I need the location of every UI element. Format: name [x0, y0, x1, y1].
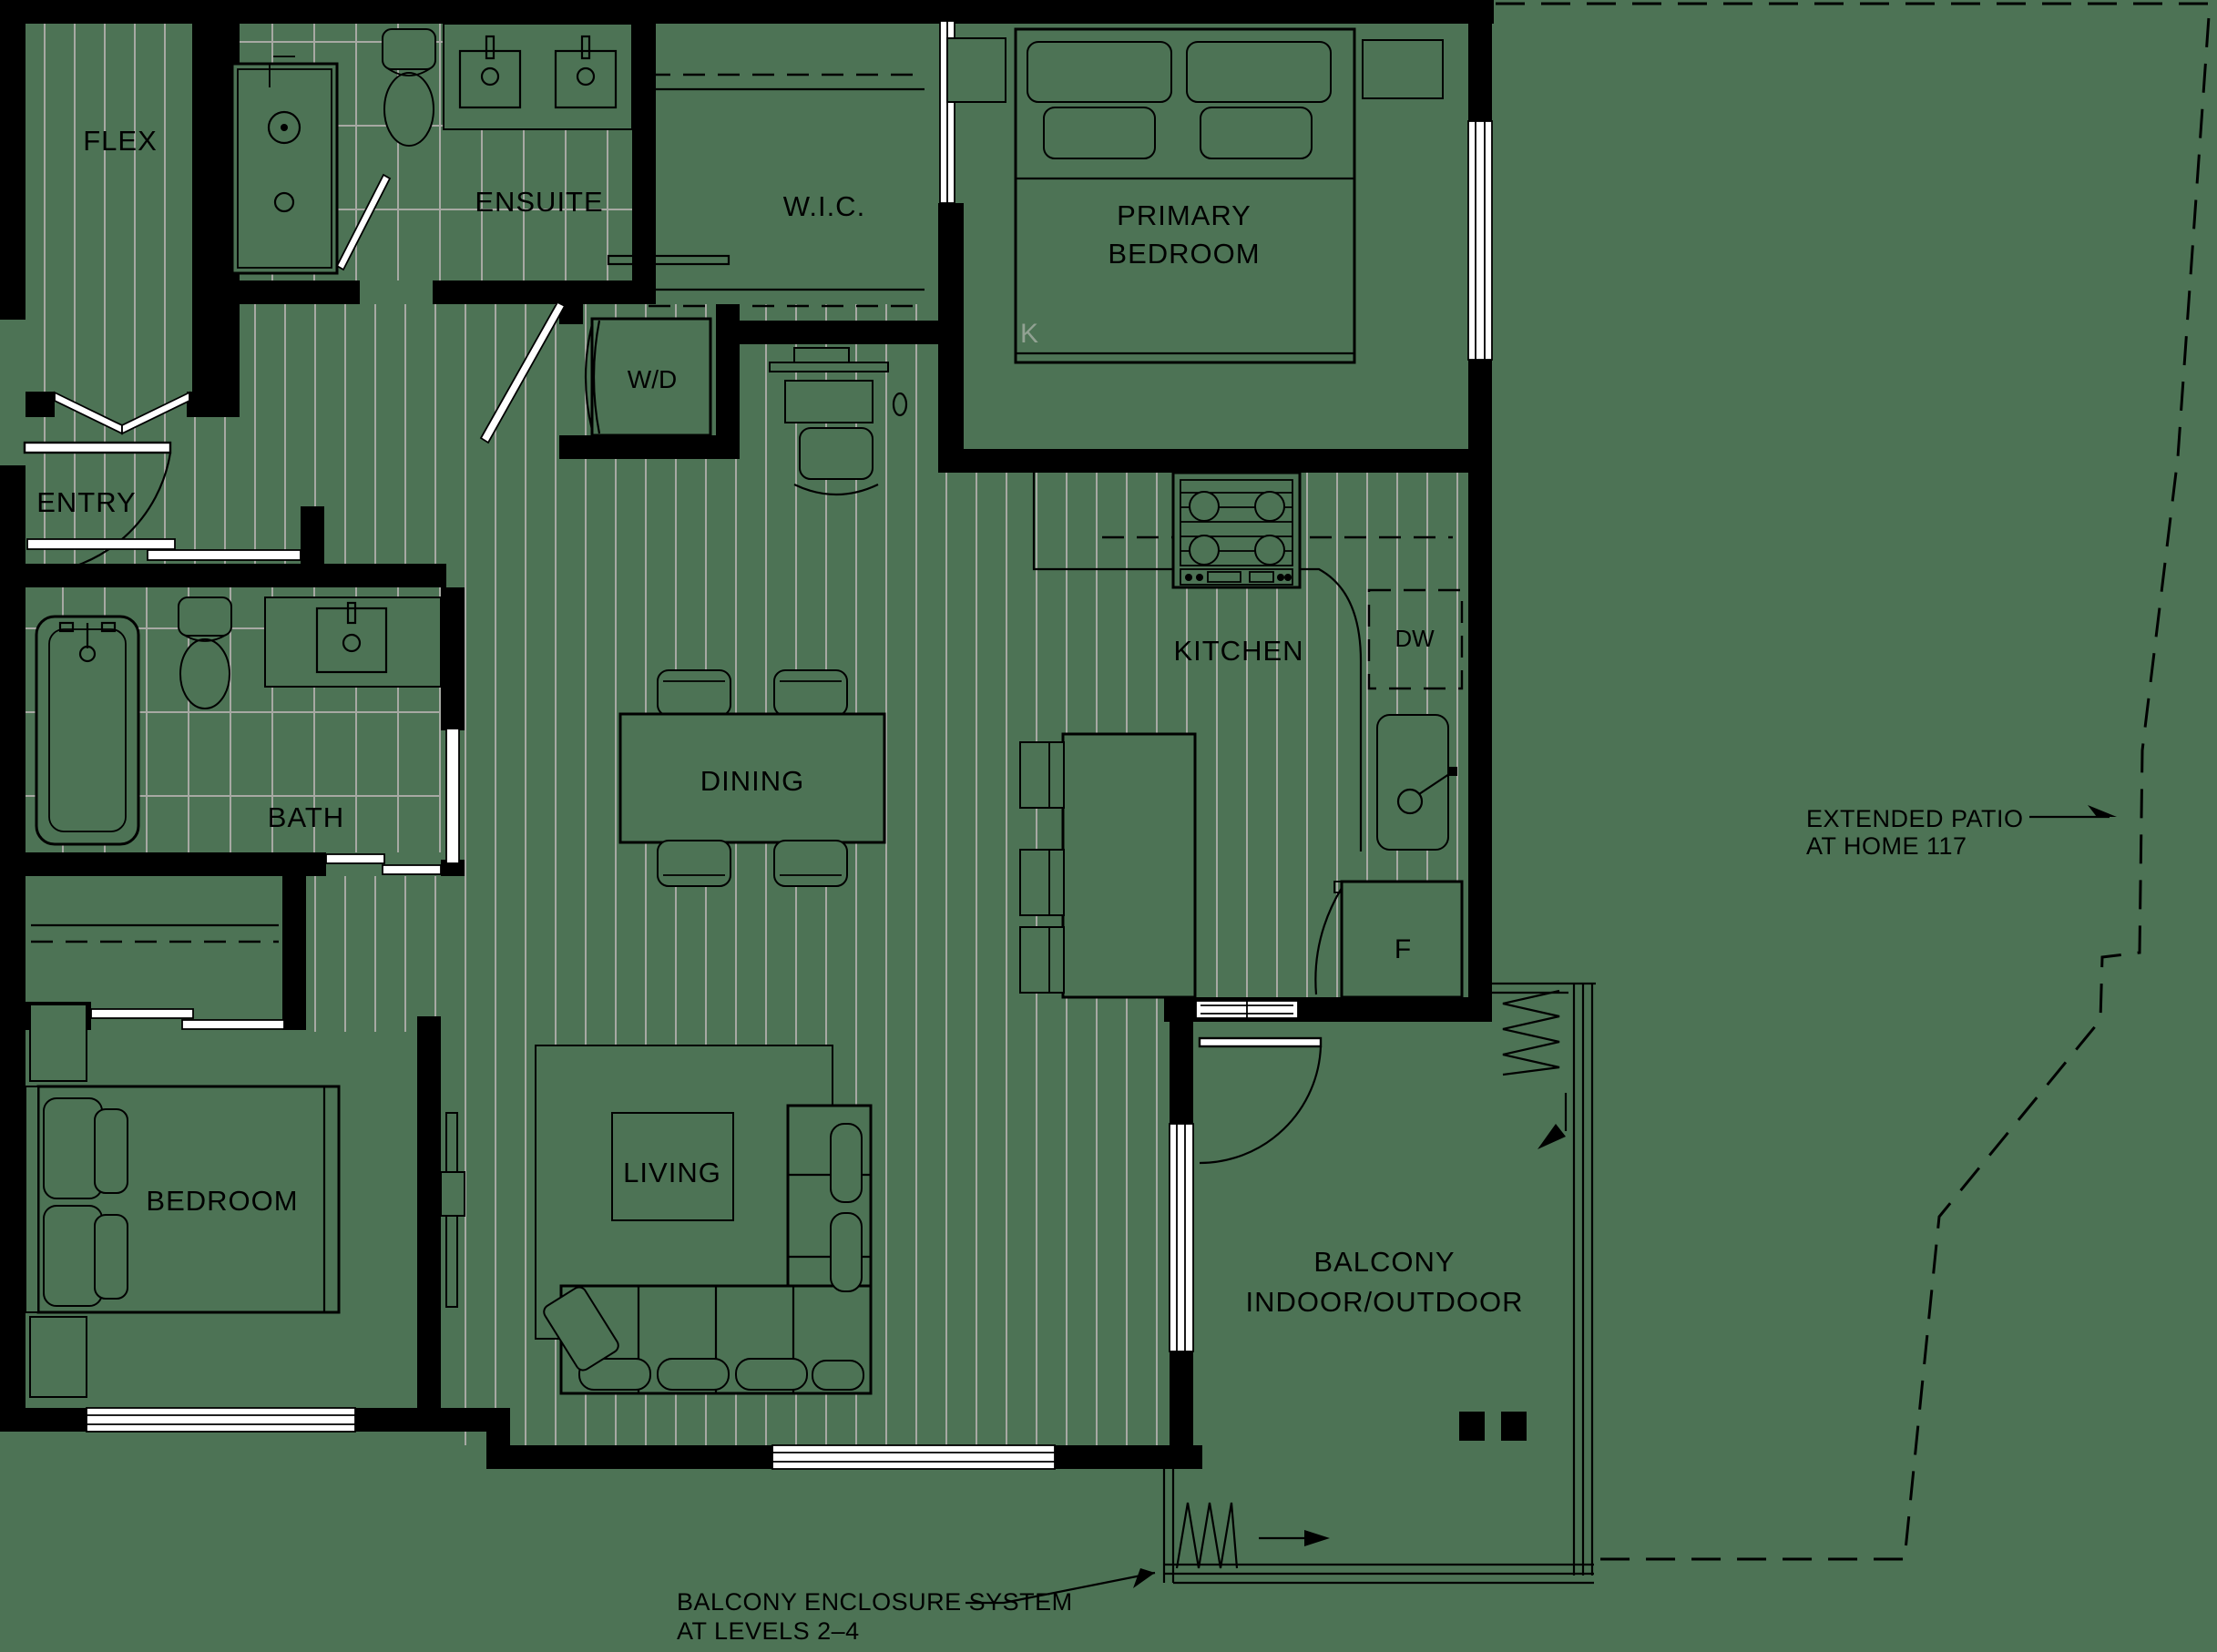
wall-closet-east	[282, 876, 306, 1009]
slide-direction-arrow-bottom	[1304, 1530, 1330, 1546]
balcony-west-rails	[1164, 1469, 1173, 1583]
primary-bedroom-label-line2: BEDROOM	[1108, 238, 1260, 270]
balcony-accordion-bottom	[1177, 1503, 1237, 1568]
primary-bedroom-furniture	[947, 29, 1443, 362]
extended-patio-note-line1: EXTENDED PATIO	[1806, 805, 2024, 832]
seat-cushion	[831, 1213, 862, 1291]
balcony-structure	[1164, 984, 1596, 1583]
pillow	[44, 1098, 102, 1198]
closet-bypass-doors-bedroom	[91, 1009, 284, 1029]
living-label: LIVING	[623, 1157, 721, 1188]
shower	[232, 56, 337, 273]
wall-balcony-west-lower	[1170, 1351, 1193, 1469]
seat-cushion	[812, 1361, 863, 1390]
floor-plan-page: FLEX ENTRY ENSUITE W.I.C. PRIMARY BEDROO…	[0, 0, 2217, 1652]
entry-label: ENTRY	[36, 486, 137, 518]
sliding-door-balcony	[1196, 1001, 1298, 1018]
dining-chair	[658, 670, 730, 716]
ensuite-vanity	[444, 24, 632, 129]
primary-bedroom-label-line1: PRIMARY	[1117, 199, 1252, 231]
dining-label: DINING	[700, 765, 805, 797]
slide-direction-arrow-top	[1538, 1124, 1566, 1149]
bath-vanity	[265, 597, 441, 687]
pillow	[95, 1109, 128, 1193]
wall-closet-stub-right	[282, 1002, 306, 1030]
wall-entry-closet-tee	[301, 506, 324, 564]
landing-floor	[306, 876, 441, 1032]
kitchen-label: KITCHEN	[1173, 635, 1303, 667]
pocket-door-bath	[446, 729, 459, 863]
extended-patio-note-line2: AT HOME 117	[1806, 832, 1967, 860]
balcony-column	[1459, 1412, 1485, 1441]
seat-cushion	[658, 1359, 729, 1390]
wall-flex-door-stub-left	[26, 392, 55, 417]
cooktop	[1173, 473, 1300, 587]
nightstand	[30, 1004, 87, 1081]
nightstand	[30, 1317, 87, 1397]
wall-wd-south	[559, 435, 740, 459]
bedroom-label: BEDROOM	[146, 1185, 298, 1217]
wall-ensuite-south-left	[216, 280, 360, 304]
wall-bedroom-east	[417, 1016, 441, 1408]
wall-wic-south	[734, 321, 947, 344]
wall-balcony-west-upper	[1170, 1022, 1193, 1124]
window-living-south	[772, 1445, 1055, 1469]
window-bedroom-south	[87, 1408, 355, 1432]
balcony-column	[1501, 1412, 1527, 1441]
patio-arrow-head	[2088, 805, 2117, 817]
property-dashed-line	[1496, 4, 2210, 1559]
nightstand	[947, 38, 1006, 102]
wall-flex-door-stub-right	[187, 392, 240, 417]
pillow	[95, 1215, 128, 1299]
wall-bath-north	[26, 564, 446, 587]
bar-stool	[1020, 742, 1064, 808]
wall-bath-south	[26, 852, 326, 876]
seat-cushion	[736, 1359, 807, 1390]
wic-label: W.I.C.	[783, 190, 865, 222]
seat-cushion	[831, 1124, 862, 1202]
window-balcony-west	[1170, 1124, 1193, 1351]
king-bed-tag: K	[1020, 319, 1038, 349]
dining-chair	[774, 841, 847, 886]
wall-primary-west	[938, 203, 964, 473]
balcony-label-line2: INDOOR/OUTDOOR	[1245, 1286, 1523, 1318]
wall-left-lower	[0, 465, 26, 1432]
wall-left-upper	[0, 0, 26, 320]
washer-dryer-label: W/D	[628, 365, 677, 393]
closet-bypass-doors-bath	[326, 854, 441, 874]
balcony-enclosure-note-line2: AT LEVELS 2–4	[677, 1617, 860, 1645]
fridge-label: F	[1395, 934, 1411, 964]
wall-wd-desk-divider	[716, 304, 740, 459]
flex-label: FLEX	[83, 125, 158, 157]
wall-bath-east	[441, 587, 465, 730]
ensuite-toilet	[383, 29, 435, 146]
window-primary-east	[1468, 121, 1492, 360]
wall-ensuite-south-right	[433, 280, 632, 304]
pillow	[1200, 107, 1312, 158]
balcony-east-rails	[1574, 984, 1592, 1576]
balcony-enclosure-note-line1: BALCONY ENCLOSURE SYSTEM	[677, 1588, 1073, 1616]
balcony-south-rails	[1164, 1565, 1594, 1583]
pillow	[1044, 107, 1155, 158]
bar-stool	[1020, 927, 1064, 993]
balcony-accordion-top	[1503, 991, 1559, 1075]
bath-toilet	[179, 597, 231, 709]
wall-top	[14, 0, 1494, 24]
pillow	[1187, 42, 1331, 102]
enclosure-leader-arrow	[1133, 1568, 1155, 1588]
wall-primary-south	[938, 449, 1468, 473]
bathtub	[36, 617, 138, 844]
bath-label: BATH	[268, 801, 344, 833]
wall-ensuite-wic-divider	[632, 24, 656, 304]
nightstand	[1363, 40, 1443, 98]
bar-stool	[1020, 850, 1064, 915]
dishwasher-label: DW	[1395, 625, 1435, 652]
balcony-hinged-door	[1200, 1038, 1321, 1163]
pillow	[1027, 42, 1171, 102]
ensuite-label: ENSUITE	[475, 186, 603, 218]
dining-chair	[658, 841, 730, 886]
pillow	[44, 1206, 102, 1306]
dining-chair	[774, 670, 847, 716]
balcony-label-line1: BALCONY	[1313, 1246, 1455, 1278]
primary-bed	[1016, 29, 1354, 362]
kitchen-sink	[1377, 715, 1457, 850]
living-east-floor	[965, 997, 1164, 1445]
kitchen-island	[1020, 734, 1195, 997]
floor-plan-svg: FLEX ENTRY ENSUITE W.I.C. PRIMARY BEDROO…	[0, 0, 2217, 1652]
